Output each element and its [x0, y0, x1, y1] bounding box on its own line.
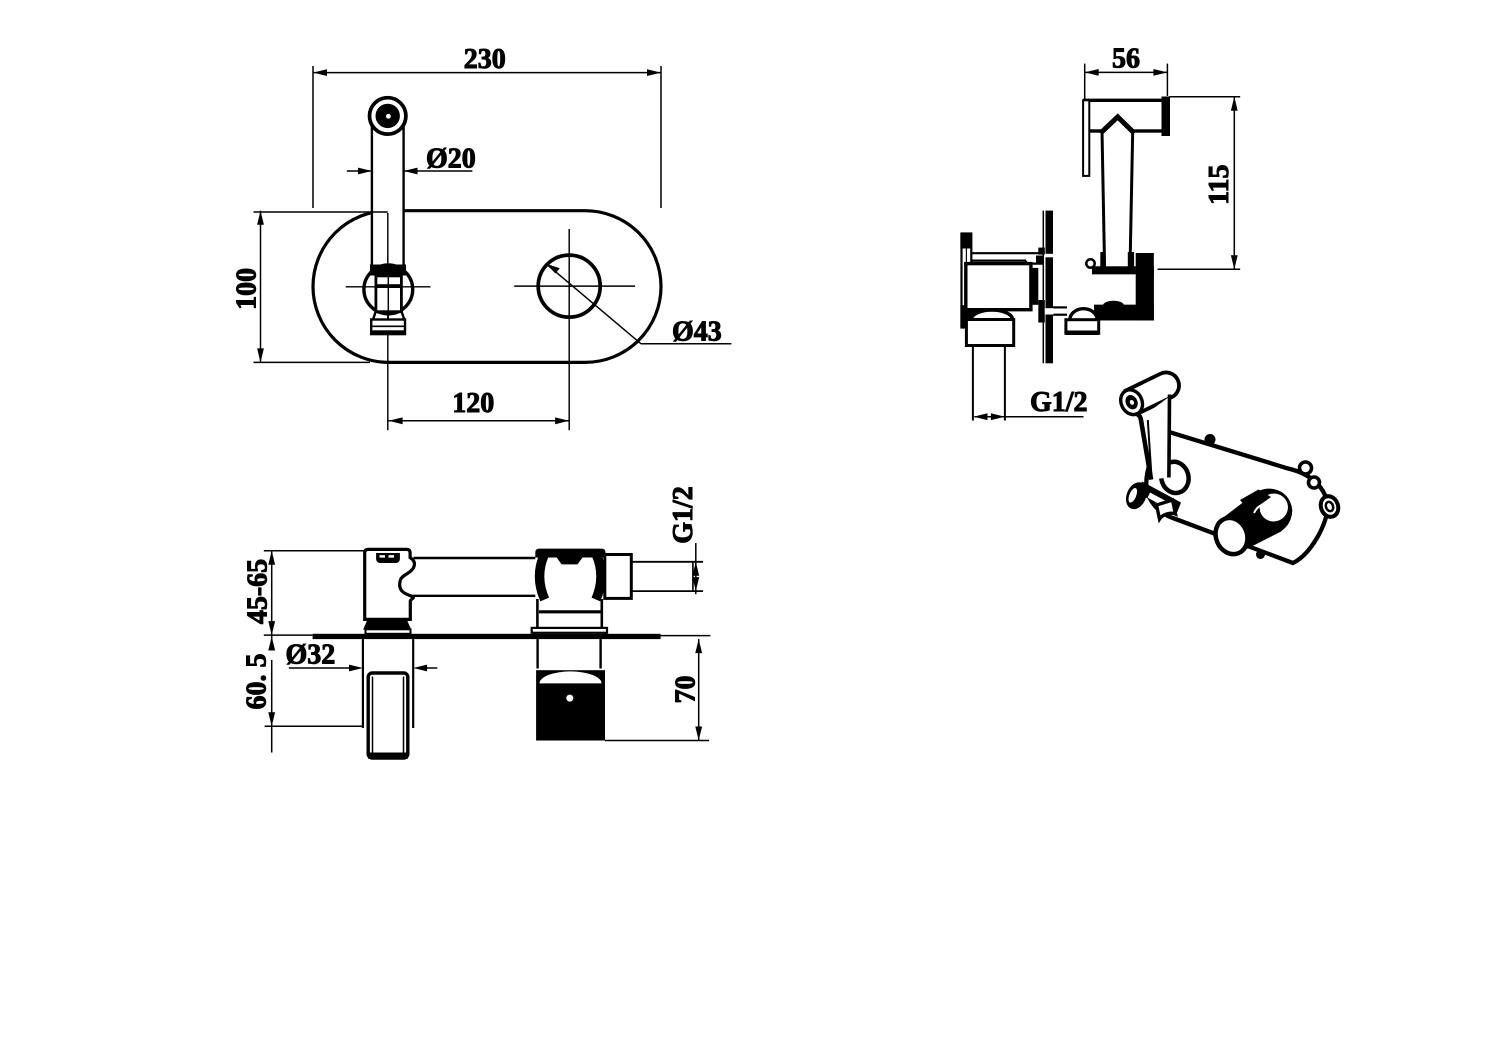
svg-text:100: 100: [232, 268, 263, 310]
svg-text:230: 230: [464, 44, 506, 75]
svg-text:60. 5: 60. 5: [242, 654, 273, 710]
svg-text:Ø20: Ø20: [426, 144, 476, 175]
svg-text:56: 56: [1112, 44, 1140, 75]
svg-text:Ø43: Ø43: [672, 317, 722, 348]
svg-text:G1/2: G1/2: [668, 486, 699, 544]
svg-text:115: 115: [1204, 164, 1235, 204]
svg-text:Ø32: Ø32: [286, 640, 336, 671]
svg-text:120: 120: [452, 388, 494, 419]
svg-text:G1/2: G1/2: [1030, 387, 1088, 418]
svg-text:45-65: 45-65: [243, 559, 274, 624]
svg-text:70: 70: [671, 676, 702, 704]
